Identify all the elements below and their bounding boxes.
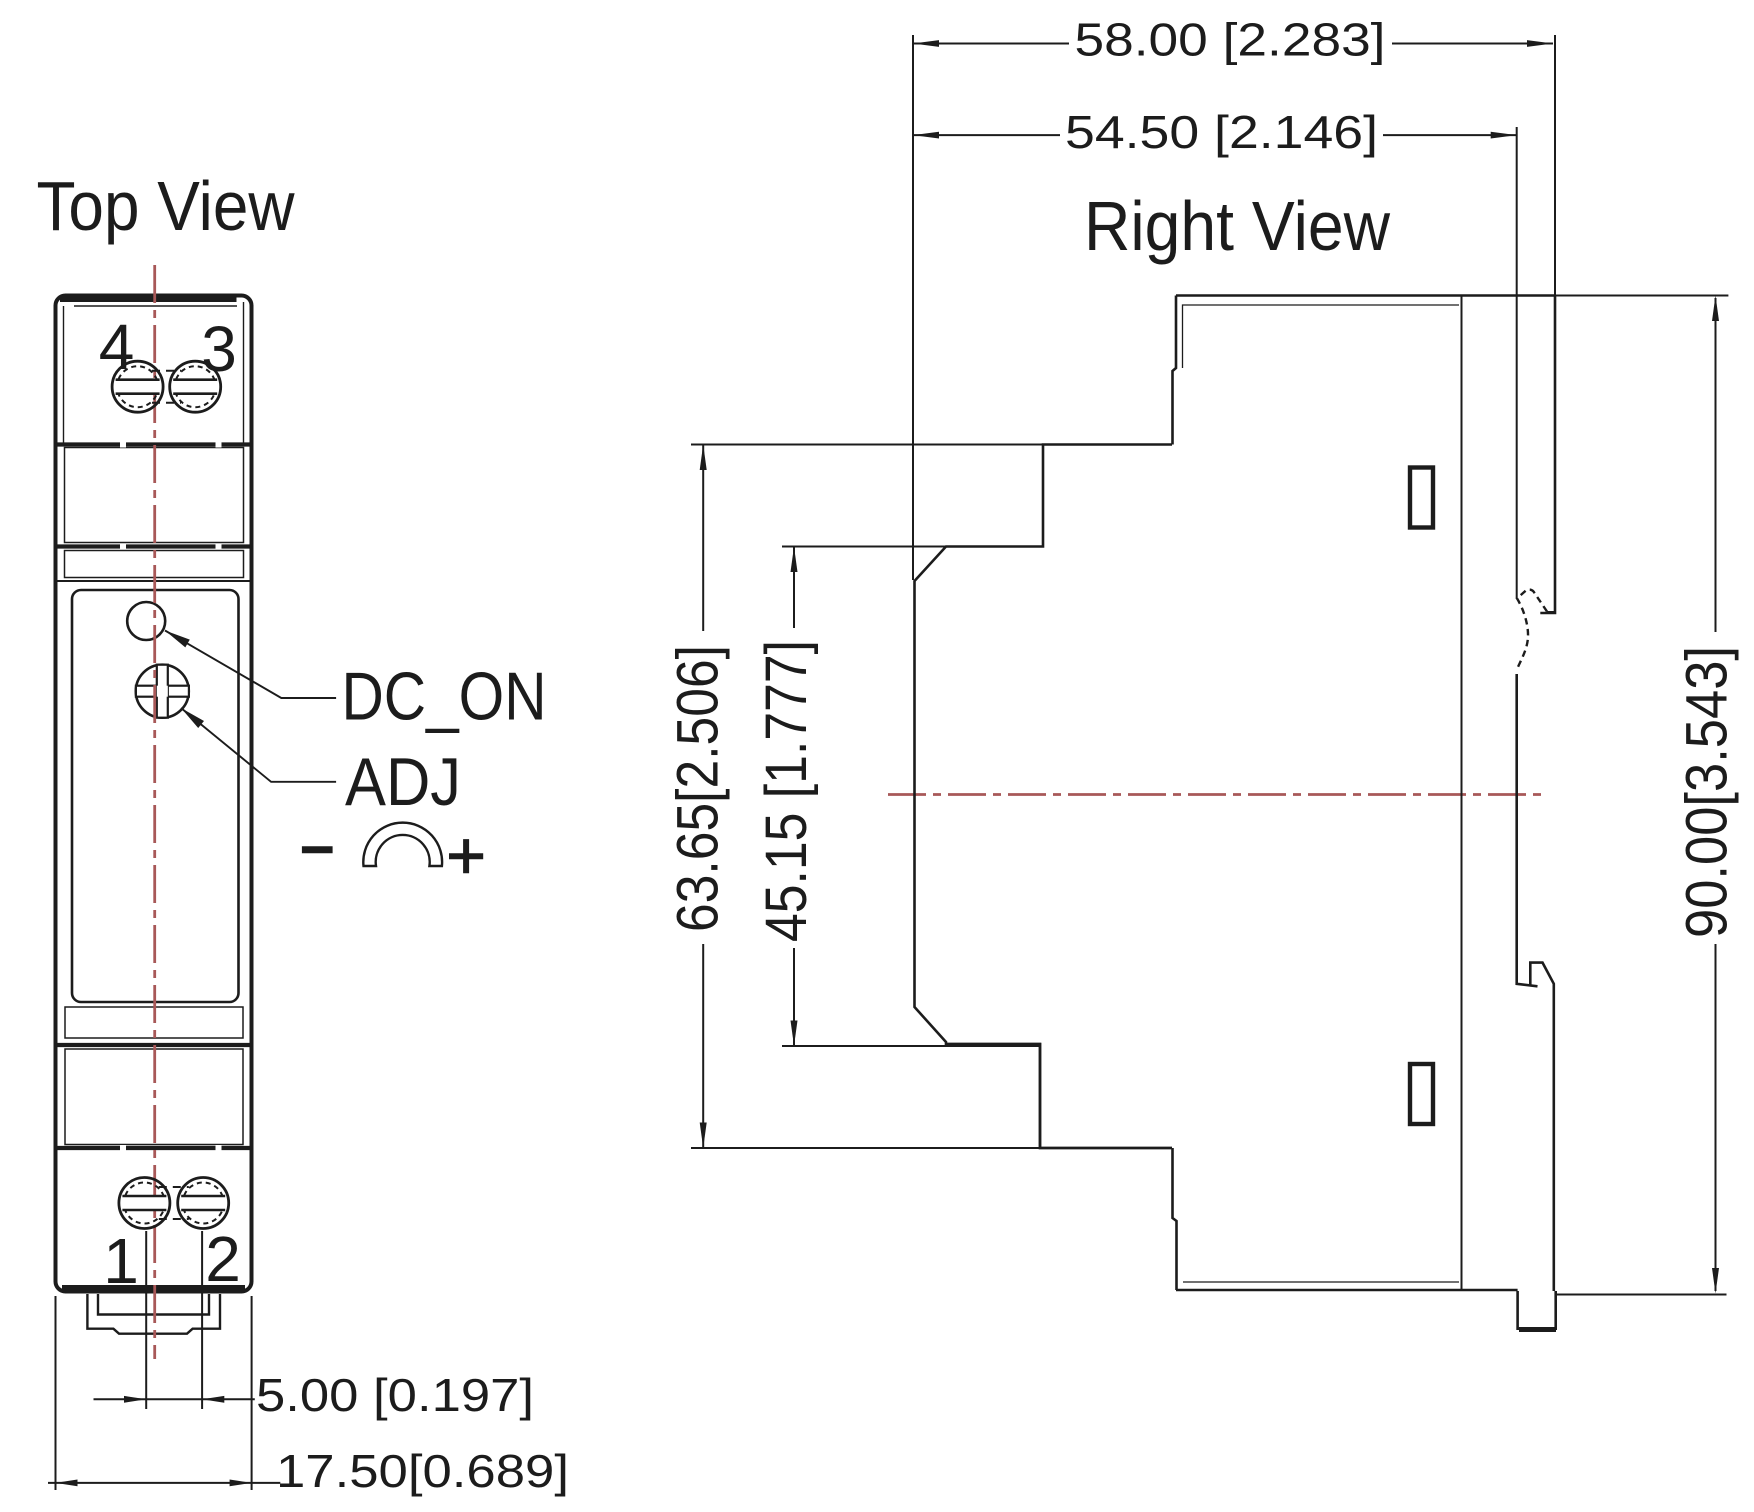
svg-text:Top View: Top View: [37, 167, 295, 245]
svg-text:17.50[0.689]: 17.50[0.689]: [276, 1445, 569, 1497]
svg-text:1: 1: [103, 1225, 139, 1297]
svg-text:DC_ON: DC_ON: [342, 659, 547, 735]
svg-text:3: 3: [201, 313, 237, 385]
svg-text:4: 4: [99, 311, 135, 383]
svg-text:54.50 [2.146]: 54.50 [2.146]: [1065, 106, 1378, 158]
svg-text:Right View: Right View: [1084, 187, 1390, 265]
svg-text:63.65[2.506]: 63.65[2.506]: [666, 645, 731, 932]
svg-text:ADJ: ADJ: [345, 744, 461, 820]
svg-text:45.15 [1.777]: 45.15 [1.777]: [754, 640, 819, 942]
svg-text:58.00 [2.283]: 58.00 [2.283]: [1075, 13, 1386, 65]
svg-text:5.00 [0.197]: 5.00 [0.197]: [256, 1369, 534, 1421]
svg-text:90.00[3.543]: 90.00[3.543]: [1675, 646, 1740, 938]
svg-text:2: 2: [205, 1223, 241, 1295]
